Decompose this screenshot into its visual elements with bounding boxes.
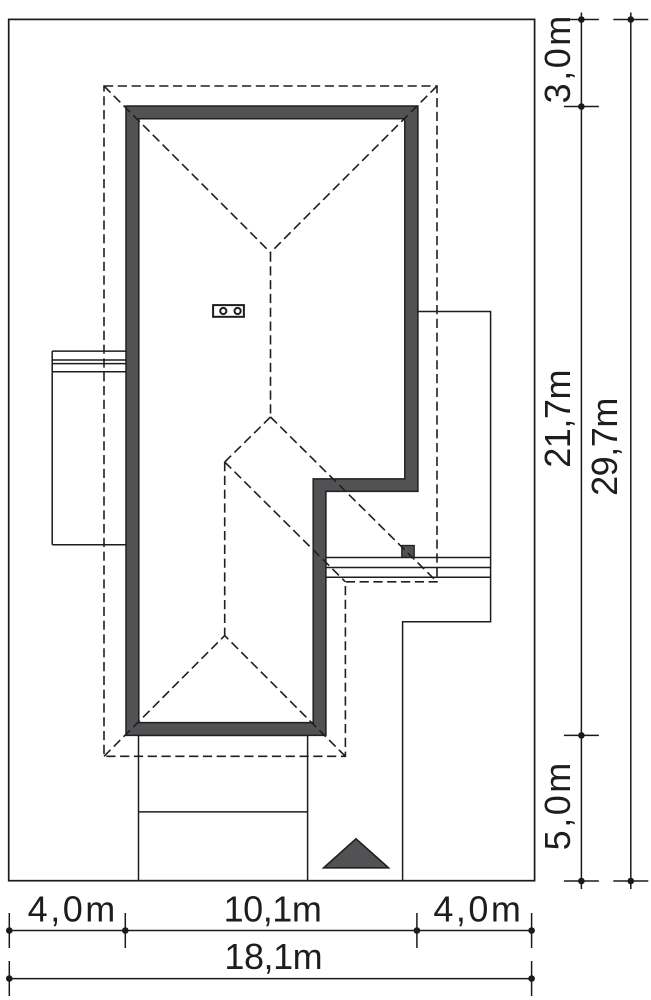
svg-text:18,1m: 18,1m bbox=[224, 936, 322, 977]
svg-text:10,1m: 10,1m bbox=[224, 889, 322, 930]
svg-text:4,0m: 4,0m bbox=[433, 889, 523, 930]
svg-text:3,0m: 3,0m bbox=[537, 13, 578, 103]
svg-text:4,0m: 4,0m bbox=[28, 889, 118, 930]
svg-text:29,7m: 29,7m bbox=[584, 398, 625, 496]
svg-text:5,0m: 5,0m bbox=[537, 760, 578, 850]
svg-text:21,7m: 21,7m bbox=[537, 370, 578, 468]
